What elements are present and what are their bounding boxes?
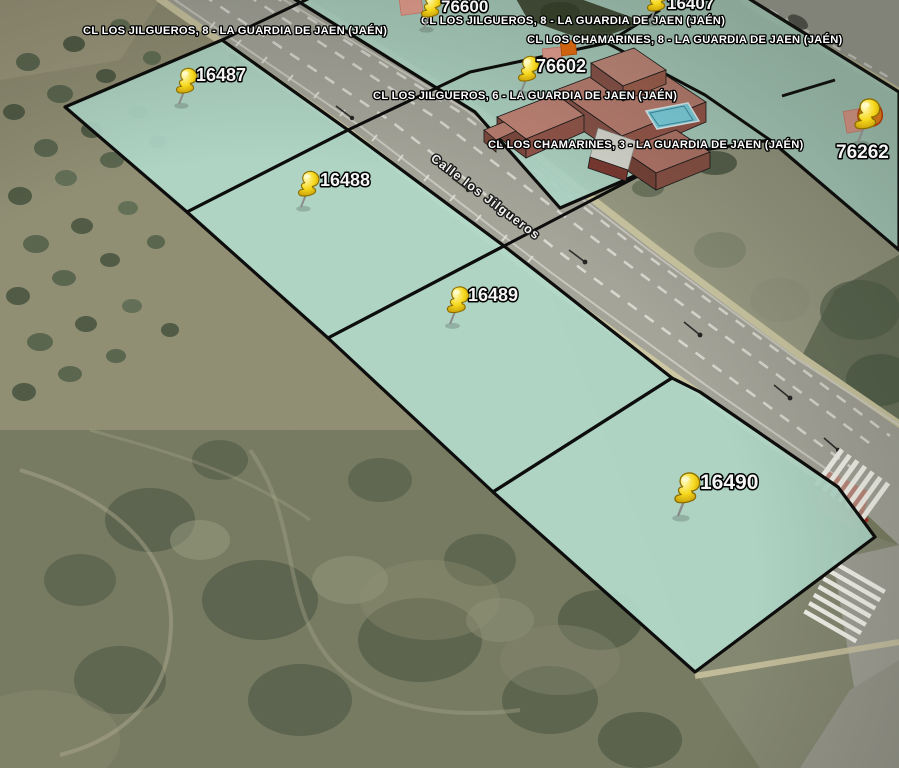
pushpin-label[interactable]: 16490 <box>700 471 758 494</box>
satellite-map-view[interactable]: CL LOS JILGUEROS, 8 - LA GUARDIA DE JAEN… <box>0 0 899 768</box>
pushpin-label[interactable]: 16407 <box>667 0 714 13</box>
pushpin-label[interactable]: 16488 <box>320 170 370 190</box>
pushpin-label[interactable]: 76262 <box>836 142 889 163</box>
address-label: CL LOS CHAMARINES, 8 - LA GUARDIA DE JAE… <box>527 33 843 46</box>
earth-canvas[interactable]: CL LOS JILGUEROS, 8 - LA GUARDIA DE JAEN… <box>0 0 899 768</box>
pushpin-label[interactable]: 16489 <box>468 285 518 305</box>
address-label: CL LOS JILGUEROS, 8 - LA GUARDIA DE JAEN… <box>83 24 387 37</box>
vignette <box>0 0 899 768</box>
pushpin-label[interactable]: 76602 <box>536 56 586 76</box>
pushpin-label[interactable]: 76600 <box>441 0 488 16</box>
address-label: CL LOS CHAMARINES, 3 - LA GUARDIA DE JAE… <box>488 138 804 151</box>
pushpin-label[interactable]: 16487 <box>196 65 246 85</box>
